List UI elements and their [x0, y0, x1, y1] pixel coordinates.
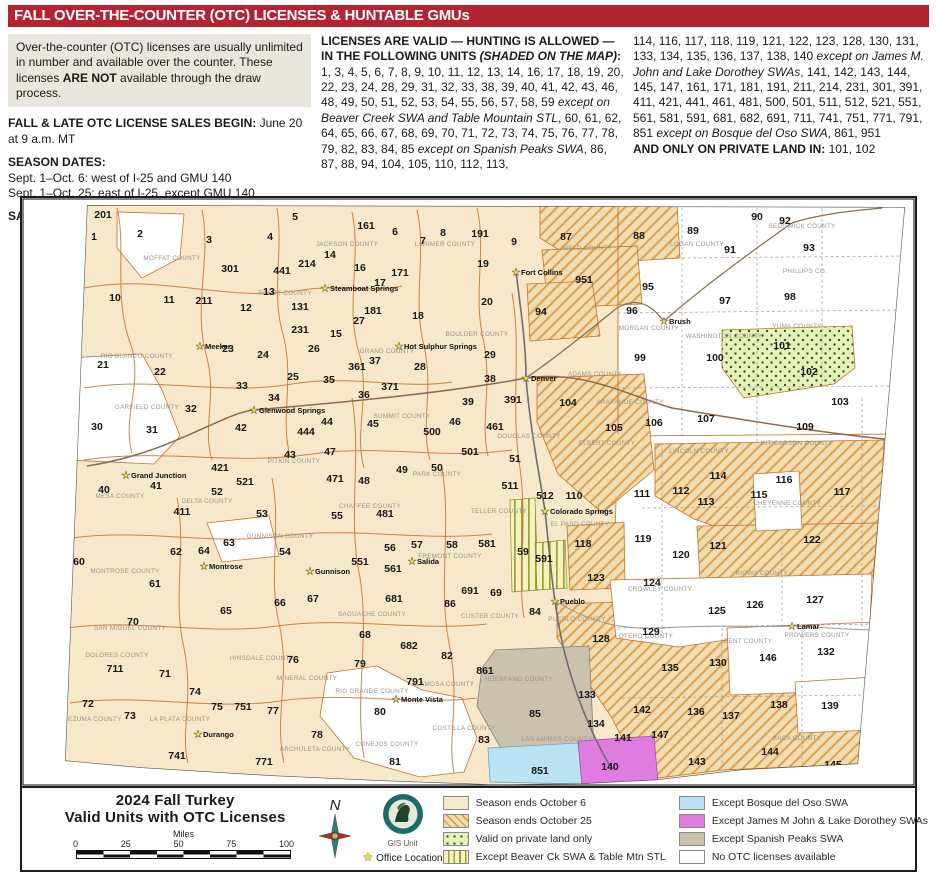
- cpw-logo-icon: [381, 792, 425, 836]
- gmu-label-48: 48: [358, 475, 370, 487]
- legend-label: Except James M John & Lake Dorothey SWAs: [712, 815, 928, 827]
- city-label: Glenwood Springs: [259, 406, 325, 415]
- county-label: LOGAN COUNTY: [670, 241, 724, 248]
- gmu-label-214: 214: [298, 258, 316, 270]
- gmu-label-116: 116: [776, 474, 793, 486]
- scale-bar: [76, 850, 291, 859]
- gmu-label-561: 561: [384, 563, 402, 575]
- county-label: KIT CARSON COUNTY: [761, 440, 833, 447]
- gmu-label-18: 18: [412, 310, 424, 322]
- gmu-label-70: 70: [127, 616, 139, 628]
- gmu-label-64: 64: [198, 545, 210, 557]
- page-title: FALL OVER-THE-COUNTER (OTC) LICENSES & H…: [14, 7, 470, 24]
- gmu-label-78: 78: [311, 729, 323, 741]
- county-label: EL PASO COUNTY: [551, 521, 610, 528]
- gmu-label-411: 411: [174, 506, 191, 518]
- legend-item: Except Beaver Ck SWA & Table Mtn STL: [443, 848, 679, 866]
- valid-units-column-1: LICENSES ARE VALID — HUNTING IS ALLOWED …: [321, 34, 624, 172]
- legend-title-block: 2024 Fall Turkey Valid Units with OTC Li…: [22, 788, 314, 868]
- office-star-icon: ★: [395, 342, 404, 353]
- gmu-label-421: 421: [211, 462, 229, 474]
- gmu-label-24: 24: [257, 349, 269, 361]
- map-title: 2024 Fall Turkey Valid Units with OTC Li…: [36, 792, 314, 827]
- gmu-label-13: 13: [263, 286, 275, 298]
- gmu-label-60: 60: [73, 556, 85, 568]
- gmu-label-591: 591: [535, 553, 553, 565]
- gmu-label-27: 27: [353, 315, 365, 327]
- gmu-label-471: 471: [326, 473, 344, 485]
- county-label: BACA COUNTY: [773, 735, 822, 742]
- map-title-line1: 2024 Fall Turkey: [36, 792, 314, 809]
- gmu-label-77: 77: [267, 705, 279, 717]
- gmu-label-121: 121: [709, 540, 727, 552]
- gmu-label-50: 50: [431, 462, 443, 474]
- gmu-label-89: 89: [687, 225, 699, 237]
- county-label: YUMA COUNTY: [772, 323, 822, 330]
- gmu-label-31: 31: [146, 424, 158, 436]
- office-star-icon: ★: [200, 562, 209, 573]
- gmu-label-97: 97: [719, 295, 731, 307]
- legend-swatch-oct6: [443, 796, 469, 810]
- gmu-label-371: 371: [381, 381, 399, 393]
- gmu-label-63: 63: [223, 537, 235, 549]
- gmu-label-117: 117: [834, 486, 851, 498]
- legend-item: Except James M John & Lake Dorothey SWAs: [679, 812, 915, 830]
- gmu-label-11: 11: [163, 294, 174, 306]
- gmu-label-511: 511: [502, 480, 519, 492]
- gmu-label-42: 42: [235, 422, 247, 434]
- office-star-icon: ★: [363, 850, 374, 864]
- gmu-label-124: 124: [643, 577, 661, 589]
- gmu-label-43: 43: [284, 449, 296, 461]
- gmu-label-73: 73: [124, 710, 136, 722]
- gmu-label-134: 134: [587, 718, 605, 730]
- gmu-label-80: 80: [374, 706, 386, 718]
- gmu-label-16: 16: [354, 262, 366, 274]
- city-label: Salida: [417, 557, 440, 566]
- gmu-label-851: 851: [531, 765, 549, 777]
- gmu-label-143: 143: [688, 756, 706, 768]
- gmu-label-83: 83: [478, 734, 490, 746]
- colorado-gmu-map: MOFFAT COUNTYROUTT COUNTYJACKSON COUNTYL…: [22, 198, 915, 788]
- gmu-label-53: 53: [256, 508, 268, 520]
- gmu-label-113: 113: [698, 496, 715, 508]
- gmu-label-791: 791: [406, 676, 424, 688]
- county-label: BOULDER COUNTY: [446, 331, 509, 338]
- gmu-label-521: 521: [236, 476, 254, 488]
- valid-units-column-2: 114, 116, 117, 118, 119, 121, 122, 123, …: [633, 34, 930, 157]
- office-location-item: ★ Office Location: [363, 850, 443, 864]
- county-label: ARAPAHOE COUNTY: [596, 399, 664, 406]
- office-star-icon: ★: [250, 406, 259, 417]
- scale-tick: 0: [73, 839, 78, 849]
- gmu-label-118: 118: [575, 538, 592, 550]
- office-star-icon: ★: [788, 622, 797, 633]
- gmu-label-122: 122: [803, 534, 821, 546]
- legend-item: Except Spanish Peaks SWA: [679, 830, 915, 848]
- county-label: DOUGLAS COUNTY: [497, 433, 561, 440]
- map-panel: MOFFAT COUNTYROUTT COUNTYJACKSON COUNTYL…: [20, 196, 917, 872]
- county-label: PUEBLO COUNTY: [548, 616, 606, 623]
- season-dates-label: SEASON DATES:: [8, 155, 106, 169]
- gmu-label-22: 22: [154, 366, 166, 378]
- gmu-label-62: 62: [170, 546, 182, 558]
- county-label: CUSTER COUNTY: [461, 613, 520, 620]
- legend-column-1: Season ends October 6Season ends October…: [443, 794, 679, 868]
- county-label: MORGAN COUNTY: [619, 325, 680, 332]
- gmu-label-681: 681: [385, 593, 403, 605]
- gmu-label-57: 57: [411, 539, 423, 551]
- gis-unit-caption: GIS Unit: [363, 839, 443, 848]
- gmu-label-68: 68: [359, 629, 371, 641]
- legend-item: No OTC licenses available: [679, 848, 915, 866]
- city-label: Brush: [669, 317, 691, 326]
- gmu-label-34: 34: [268, 392, 280, 404]
- map-layers: MOFFAT COUNTYROUTT COUNTYJACKSON COUNTYL…: [48, 203, 907, 785]
- gmu-label-66: 66: [274, 597, 286, 609]
- compass-rose-icon: N: [314, 796, 356, 860]
- gmu-label-861: 861: [476, 665, 494, 677]
- county-label: ARCHULETA COUNTY: [280, 746, 351, 753]
- county-label: WELD COUNTY: [562, 245, 612, 252]
- office-star-icon: ★: [306, 567, 315, 578]
- gmu-label-110: 110: [566, 490, 583, 502]
- gmu-label-52: 52: [211, 486, 223, 498]
- office-star-icon: ★: [122, 471, 131, 482]
- gmu-label-102: 102: [800, 366, 818, 378]
- gmu-label-67: 67: [307, 593, 319, 605]
- gmu-label-40: 40: [98, 484, 110, 496]
- gmu-label-130: 130: [709, 657, 727, 669]
- gmu-label-131: 131: [291, 301, 309, 313]
- compass-block: N: [314, 788, 362, 868]
- office-star-icon: ★: [321, 284, 330, 295]
- office-star-icon: ★: [392, 695, 401, 706]
- gmu-label-41: 41: [150, 480, 162, 492]
- city-label: Montrose: [209, 562, 243, 571]
- scale-tick-labels: 0255075100: [73, 839, 294, 849]
- gmu-label-91: 91: [724, 244, 736, 256]
- legend-swatch-oct25: [443, 814, 469, 828]
- county-label: KIOWA COUNTY: [736, 570, 789, 577]
- county-label: LINCOLN COUNTY: [669, 448, 729, 455]
- gmu-label-138: 138: [770, 699, 788, 711]
- gmu-label-107: 107: [697, 413, 715, 425]
- gmu-label-481: 481: [376, 508, 394, 520]
- county-label: COSTILLA COUNTY: [433, 725, 496, 732]
- scale-tick: 75: [226, 839, 236, 849]
- gmu-label-29: 29: [484, 349, 496, 361]
- gmu-label-361: 361: [348, 361, 366, 373]
- top-text-columns: Over-the-counter (OTC) licenses are usua…: [8, 34, 930, 192]
- legend-item: Valid on private land only: [443, 830, 679, 848]
- scale-units-label: Miles: [76, 829, 291, 839]
- county-label: GUNNISON COUNTY: [247, 533, 314, 540]
- gmu-label-441: 441: [273, 265, 291, 277]
- gmu-label-86: 86: [444, 598, 456, 610]
- legend-item: Season ends October 6: [443, 794, 679, 812]
- gmu-label-181: 181: [364, 305, 382, 317]
- gmu-label-88: 88: [633, 230, 645, 242]
- scale-bar-block: Miles 0255075100: [76, 829, 291, 859]
- city-label: Colorado Springs: [550, 507, 613, 516]
- office-location-label: Office Location: [376, 853, 443, 864]
- gmu-label-127: 127: [806, 594, 824, 606]
- legend-item: Season ends October 25: [443, 812, 679, 830]
- legend-label: Except Spanish Peaks SWA: [712, 833, 844, 845]
- county-label: BENT COUNTY: [724, 638, 773, 645]
- legend-item: Except Bosque del Oso SWA: [679, 794, 915, 812]
- gmu-label-93: 93: [803, 242, 815, 254]
- county-label: SUMMIT COUNTY: [374, 413, 431, 420]
- county-label: LAS ANIMAS COUNTY: [522, 736, 593, 743]
- gmu-label-10: 10: [109, 292, 121, 304]
- gmu-label-79: 79: [354, 658, 366, 670]
- gmu-label-144: 144: [761, 746, 779, 758]
- county-label: ELBERT COUNTY: [579, 440, 636, 447]
- map-legend: 2024 Fall Turkey Valid Units with OTC Li…: [22, 788, 915, 868]
- gmu-label-71: 71: [159, 668, 171, 680]
- gmu-label-90: 90: [751, 211, 763, 223]
- brochure-page: FALL OVER-THE-COUNTER (OTC) LICENSES & H…: [0, 0, 936, 873]
- legend-swatch-beaver: [443, 850, 469, 864]
- gmu-label-100: 100: [706, 352, 724, 364]
- gmu-label-84: 84: [529, 606, 541, 618]
- gmu-label-21: 21: [97, 359, 109, 371]
- gmu-label-147: 147: [651, 729, 669, 741]
- gmu-label-55: 55: [331, 510, 343, 522]
- gmu-label-3: 3: [206, 234, 212, 246]
- gmu-label-47: 47: [324, 446, 336, 458]
- gmu-label-112: 112: [673, 485, 690, 497]
- gmu-label-500: 500: [423, 426, 441, 438]
- gmu-label-14: 14: [324, 249, 336, 261]
- county-label: PHILLIPS CO.: [783, 268, 827, 275]
- gmu-label-691: 691: [461, 585, 479, 597]
- gmu-label-94: 94: [535, 306, 547, 318]
- county-label: CONEJOS COUNTY: [356, 741, 419, 748]
- legend-swatch-none: [679, 850, 705, 864]
- gmu-label-15: 15: [330, 328, 342, 340]
- city-label: Lamar: [797, 622, 820, 631]
- gmu-label-32: 32: [185, 403, 197, 415]
- legend-label: Season ends October 25: [476, 815, 592, 827]
- county-label: DELTA COUNTY: [182, 498, 233, 505]
- gmu-label-37: 37: [369, 355, 381, 367]
- gmu-label-114: 114: [710, 470, 727, 482]
- gmu-label-751: 751: [234, 701, 252, 713]
- gmu-label-129: 129: [642, 626, 660, 638]
- gmu-label-105: 105: [605, 422, 623, 434]
- office-star-icon: ★: [541, 507, 550, 518]
- legend-swatch-bosque: [679, 796, 705, 810]
- gmu-label-501: 501: [461, 446, 479, 458]
- gmu-label-58: 58: [446, 539, 458, 551]
- gmu-label-4: 4: [267, 231, 273, 243]
- gmu-label-1: 1: [91, 231, 97, 243]
- county-label: RIO BLANCO COUNTY: [101, 353, 174, 360]
- gmu-label-75: 75: [211, 701, 223, 713]
- gmu-label-126: 126: [746, 599, 764, 611]
- gmu-label-711: 711: [107, 663, 124, 675]
- gmu-label-201: 201: [94, 209, 112, 221]
- legend-label: No OTC licenses available: [712, 851, 836, 863]
- office-star-icon: ★: [551, 597, 560, 608]
- city-label: Denver: [531, 374, 557, 383]
- gmu-label-33: 33: [236, 380, 248, 392]
- gmu-label-26: 26: [308, 343, 320, 355]
- sales-begin-line: FALL & LATE OTC LICENSE SALES BEGIN: Jun…: [8, 116, 311, 147]
- gmu-label-51: 51: [509, 453, 521, 465]
- gmu-label-444: 444: [297, 426, 315, 438]
- county-label: LA PLATA COUNTY: [150, 716, 211, 723]
- gmu-label-139: 139: [821, 700, 839, 712]
- gmu-label-123: 123: [587, 572, 605, 584]
- legend-swatch-spanish: [679, 832, 705, 846]
- gmu-label-171: 171: [391, 267, 409, 279]
- county-label: SAGUACHE COUNTY: [338, 611, 407, 618]
- gmu-label-95: 95: [642, 281, 654, 293]
- gmu-label-65: 65: [220, 605, 232, 617]
- gmu-label-8: 8: [440, 227, 446, 239]
- gmu-label-301: 301: [221, 263, 239, 275]
- gmu-label-111: 111: [634, 488, 651, 500]
- gmu-label-161: 161: [357, 220, 375, 232]
- office-star-icon: ★: [512, 268, 521, 279]
- page-title-bar: FALL OVER-THE-COUNTER (OTC) LICENSES & H…: [8, 5, 929, 27]
- office-star-icon: ★: [522, 374, 531, 385]
- gmu-label-7: 7: [420, 235, 426, 247]
- gmu-label-69: 69: [490, 587, 502, 599]
- city-label: Pueblo: [560, 597, 585, 606]
- city-label: Hot Sulphur Springs: [404, 342, 477, 351]
- valid-units-list-1: 1, 3, 4, 5, 6, 7, 8, 9, 10, 11, 12, 13, …: [321, 65, 624, 173]
- gmu-label-72: 72: [82, 698, 94, 710]
- gmu-label-115: 115: [751, 489, 768, 501]
- gmu-label-141: 141: [614, 732, 632, 744]
- county-label: HUERFANO COUNTY: [485, 676, 553, 683]
- gmu-label-191: 191: [471, 228, 489, 240]
- gmu-label-54: 54: [279, 546, 291, 558]
- county-label: PROWERS COUNTY: [784, 632, 850, 639]
- scale-tick: 100: [279, 839, 294, 849]
- gmu-label-49: 49: [396, 464, 408, 476]
- county-label: WASHINGTON COUNTY: [686, 333, 763, 340]
- county-label: JACKSON COUNTY: [316, 241, 379, 248]
- office-star-icon: ★: [196, 342, 205, 353]
- gmu-label-951: 951: [575, 274, 593, 286]
- gmu-label-109: 109: [796, 421, 814, 433]
- city-label: Fort Collins: [521, 268, 563, 277]
- county-label: TELLER COUNTY: [471, 508, 528, 515]
- gmu-label-25: 25: [287, 371, 299, 383]
- county-label: ADAMS COUNTY: [568, 371, 623, 378]
- gmu-label-771: 771: [255, 756, 273, 768]
- city-label: Monte Vista: [401, 695, 444, 704]
- gmu-label-142: 142: [633, 704, 651, 716]
- gmu-label-19: 19: [477, 258, 489, 270]
- map-svg: MOFFAT COUNTYROUTT COUNTYJACKSON COUNTYL…: [22, 198, 915, 786]
- city-label: Gunnison: [315, 567, 350, 576]
- gmu-label-146: 146: [759, 652, 777, 664]
- svg-text:N: N: [330, 797, 341, 814]
- gmu-label-104: 104: [559, 397, 577, 409]
- gmu-label-82: 82: [441, 650, 453, 662]
- otc-intro-text: Over-the-counter (OTC) licenses are usua…: [16, 40, 303, 100]
- sales-begin-label: FALL & LATE OTC LICENSE SALES BEGIN:: [8, 116, 256, 130]
- valid-units-heading: LICENSES ARE VALID — HUNTING IS ALLOWED …: [321, 34, 624, 65]
- gmu-label-96: 96: [626, 305, 638, 317]
- scale-tick: 50: [173, 839, 183, 849]
- valid-units-list-2: 114, 116, 117, 118, 119, 121, 122, 123, …: [633, 34, 930, 157]
- gmu-label-99: 99: [634, 352, 646, 364]
- gmu-label-2: 2: [137, 228, 143, 240]
- gmu-label-45: 45: [367, 418, 379, 430]
- city-label: Meeker: [205, 342, 231, 351]
- gmu-label-461: 461: [486, 421, 504, 433]
- gmu-label-35: 35: [323, 374, 335, 386]
- legend-keys: Season ends October 6Season ends October…: [443, 788, 915, 868]
- gmu-label-125: 125: [708, 605, 726, 617]
- gmu-label-231: 231: [291, 324, 309, 336]
- gmu-label-391: 391: [504, 394, 522, 406]
- gmu-label-119: 119: [635, 533, 652, 545]
- gmu-label-135: 135: [661, 662, 679, 674]
- city-label: Grand Junction: [131, 471, 187, 480]
- legend-label: Except Bosque del Oso SWA: [712, 797, 848, 809]
- gmu-label-211: 211: [196, 295, 213, 307]
- gmu-label-682: 682: [400, 640, 418, 652]
- city-label: Durango: [203, 730, 234, 739]
- county-label: MOFFAT COUNTY: [143, 255, 201, 262]
- gmu-label-137: 137: [722, 710, 740, 722]
- legend-label: Except Beaver Ck SWA & Table Mtn STL: [476, 851, 666, 863]
- gmu-label-74: 74: [189, 686, 201, 698]
- season-date-1: Sept. 1–Oct. 6: west of I-25 and GMU 140: [8, 171, 231, 185]
- gmu-label-59: 59: [517, 546, 529, 558]
- gmu-label-9: 9: [511, 236, 517, 248]
- gmu-label-5: 5: [292, 211, 298, 223]
- gmu-label-120: 120: [672, 549, 690, 561]
- gmu-label-6: 6: [392, 226, 398, 238]
- cpw-logo-block: GIS Unit ★ Office Location: [363, 788, 443, 868]
- map-title-line2: Valid Units with OTC Licenses: [36, 809, 314, 826]
- gmu-label-44: 44: [321, 416, 333, 428]
- gmu-label-92: 92: [779, 215, 791, 227]
- office-star-icon: ★: [660, 317, 669, 328]
- gmu-label-46: 46: [449, 416, 461, 428]
- legend-label: Valid on private land only: [476, 833, 593, 845]
- bosque-del-oso-region: [488, 743, 582, 784]
- otc-intro-box: Over-the-counter (OTC) licenses are usua…: [8, 34, 311, 107]
- gmu-label-106: 106: [645, 417, 663, 429]
- gmu-label-581: 581: [478, 538, 496, 550]
- gmu-label-61: 61: [149, 578, 161, 590]
- gmu-label-39: 39: [462, 396, 474, 408]
- office-star-icon: ★: [408, 557, 417, 568]
- gmu-label-133: 133: [578, 689, 596, 701]
- gmu-label-28: 28: [414, 361, 426, 373]
- gmu-label-741: 741: [168, 750, 186, 762]
- gmu-label-87: 87: [560, 231, 572, 243]
- gmu-label-101: 101: [773, 340, 791, 352]
- gmu-label-76: 76: [287, 654, 299, 666]
- gmu-label-128: 128: [592, 633, 610, 645]
- gmu-label-98: 98: [784, 291, 796, 303]
- gmu-label-56: 56: [384, 542, 396, 554]
- gmu-label-136: 136: [687, 706, 705, 718]
- gmu-label-81: 81: [389, 756, 401, 768]
